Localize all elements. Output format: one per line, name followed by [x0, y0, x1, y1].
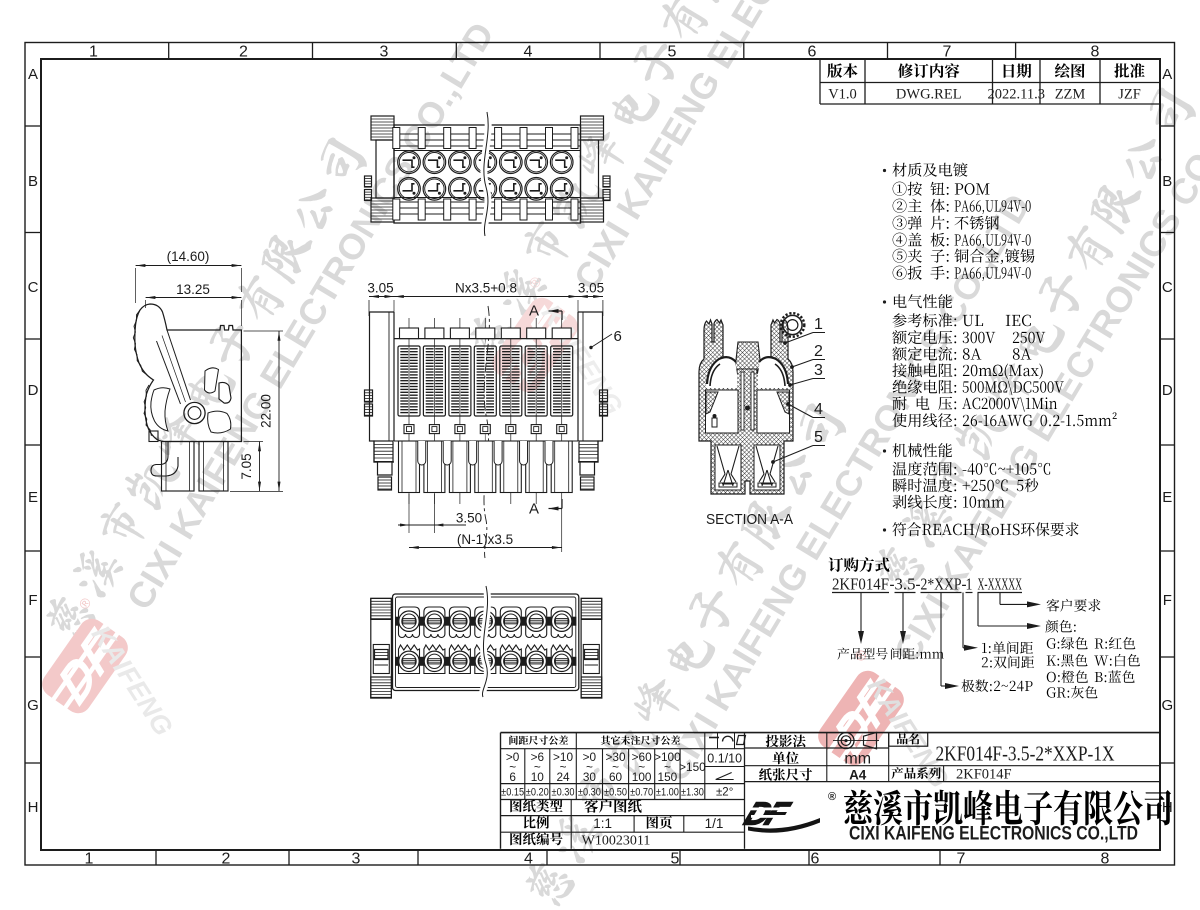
svg-text:C: C [28, 279, 39, 296]
svg-text:B: B [1162, 173, 1172, 190]
svg-text:2*XXP: 2*XXP [921, 575, 962, 594]
svg-text:A4: A4 [849, 768, 867, 783]
svg-text:2022.11.3: 2022.11.3 [988, 87, 1045, 103]
svg-text:2KF014F-3.5-2*XXP-1X: 2KF014F-3.5-2*XXP-1X [936, 742, 1115, 766]
svg-text:7.05: 7.05 [239, 453, 254, 479]
svg-text:5: 5 [668, 44, 677, 61]
svg-text:7: 7 [943, 44, 952, 61]
svg-text:SECTION A-A: SECTION A-A [706, 511, 793, 528]
svg-text:±0.50: ±0.50 [604, 787, 627, 799]
svg-text:2: 2 [814, 343, 823, 360]
svg-text:A: A [1162, 66, 1172, 83]
svg-text:A: A [529, 501, 539, 518]
svg-text:±1.30: ±1.30 [681, 787, 704, 799]
svg-text:D: D [1162, 382, 1173, 399]
svg-text:1: 1 [966, 575, 973, 594]
svg-text:1: 1 [85, 851, 94, 868]
svg-text:3: 3 [380, 44, 389, 61]
svg-text:2KF014F: 2KF014F [956, 766, 1012, 782]
svg-text:2: 2 [239, 44, 248, 61]
svg-text:1/1: 1/1 [705, 816, 724, 831]
svg-text:2: 2 [222, 851, 231, 868]
svg-text:4: 4 [524, 44, 533, 61]
svg-text:±1.00: ±1.00 [656, 787, 679, 799]
svg-text:Nx3.5+0.8: Nx3.5+0.8 [455, 281, 517, 296]
svg-text:CIXI KAIFENG ELECTRONICS CO.,L: CIXI KAIFENG ELECTRONICS CO.,LTD [849, 823, 1138, 845]
svg-text:6: 6 [808, 44, 817, 61]
svg-text:±2°: ±2° [716, 787, 733, 799]
svg-text:A: A [28, 66, 38, 83]
svg-text:X-XXXXX: X-XXXXX [978, 575, 1023, 594]
svg-text:30: 30 [583, 770, 597, 784]
svg-text:F: F [28, 592, 37, 609]
svg-text:1: 1 [814, 316, 823, 333]
svg-text:(14.60): (14.60) [167, 249, 210, 264]
svg-text:7: 7 [957, 851, 966, 868]
svg-text:ZZM: ZZM [1055, 87, 1086, 103]
svg-text:4: 4 [524, 851, 533, 868]
svg-text:±0.15: ±0.15 [501, 787, 524, 799]
svg-text:8: 8 [1091, 44, 1100, 61]
svg-text:5: 5 [671, 851, 680, 868]
svg-text:±0.20: ±0.20 [526, 787, 549, 799]
svg-text:60: 60 [609, 770, 623, 784]
svg-text:>150: >150 [679, 760, 706, 774]
svg-text:6: 6 [614, 328, 622, 345]
svg-text:1:1: 1:1 [593, 816, 612, 831]
svg-text:3.5: 3.5 [895, 575, 916, 594]
svg-text:±0.70: ±0.70 [630, 787, 653, 799]
svg-text:F: F [1163, 592, 1172, 609]
svg-text:mm: mm [844, 751, 871, 768]
svg-text:2KF014F: 2KF014F [832, 575, 889, 594]
svg-text:±0.30: ±0.30 [552, 787, 575, 799]
svg-text:0.1/10: 0.1/10 [707, 752, 742, 766]
svg-text:22.00: 22.00 [259, 394, 274, 428]
svg-text:1: 1 [89, 44, 98, 61]
svg-text:24: 24 [556, 770, 570, 784]
svg-text:100: 100 [632, 770, 652, 784]
svg-text:(N-1)x3.5: (N-1)x3.5 [457, 532, 513, 547]
svg-text:10: 10 [531, 770, 545, 784]
svg-text:E: E [28, 489, 38, 506]
svg-text:DWG.REL: DWG.REL [896, 87, 962, 103]
svg-text:3.05: 3.05 [578, 281, 604, 296]
svg-text:C: C [1162, 279, 1173, 296]
svg-text:13.25: 13.25 [176, 282, 210, 297]
svg-text:B: B [28, 173, 38, 190]
svg-text:G: G [1161, 697, 1173, 714]
svg-text:150: 150 [658, 770, 678, 784]
svg-text:4: 4 [814, 401, 823, 418]
svg-text:G: G [27, 697, 39, 714]
svg-text:JZF: JZF [1118, 87, 1141, 103]
svg-text:V1.0: V1.0 [828, 87, 857, 103]
svg-text:D: D [28, 382, 39, 399]
svg-text:W10023011: W10023011 [582, 834, 651, 849]
svg-text:H: H [28, 799, 39, 816]
svg-text:A: A [529, 303, 539, 320]
svg-text:3.50: 3.50 [456, 511, 482, 526]
svg-text:®: ® [828, 791, 836, 803]
svg-text:6: 6 [811, 851, 820, 868]
svg-text:6: 6 [509, 770, 516, 784]
svg-text:3: 3 [352, 851, 361, 868]
svg-text:5: 5 [814, 429, 823, 446]
svg-text:3: 3 [814, 362, 823, 379]
svg-text:8: 8 [1101, 851, 1110, 868]
svg-text:3.05: 3.05 [367, 281, 393, 296]
svg-text:±0.30: ±0.30 [578, 787, 601, 799]
svg-text:E: E [1162, 489, 1172, 506]
